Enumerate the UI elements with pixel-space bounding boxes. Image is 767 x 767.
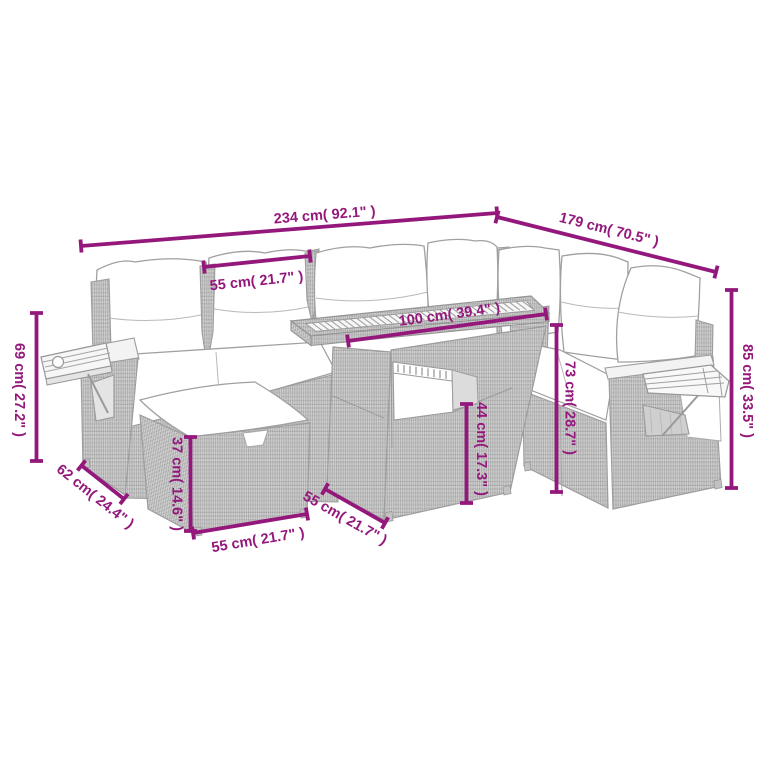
svg-text:73 cm( 28.7" ): 73 cm( 28.7" ) bbox=[562, 361, 578, 455]
svg-text:37 cm( 14.6" ): 37 cm( 14.6" ) bbox=[169, 437, 185, 531]
svg-text:69 cm( 27.2" ): 69 cm( 27.2" ) bbox=[11, 343, 27, 437]
svg-text:85 cm( 33.5" ): 85 cm( 33.5" ) bbox=[739, 344, 755, 438]
svg-text:44 cm( 17.3" ): 44 cm( 17.3" ) bbox=[473, 402, 489, 496]
